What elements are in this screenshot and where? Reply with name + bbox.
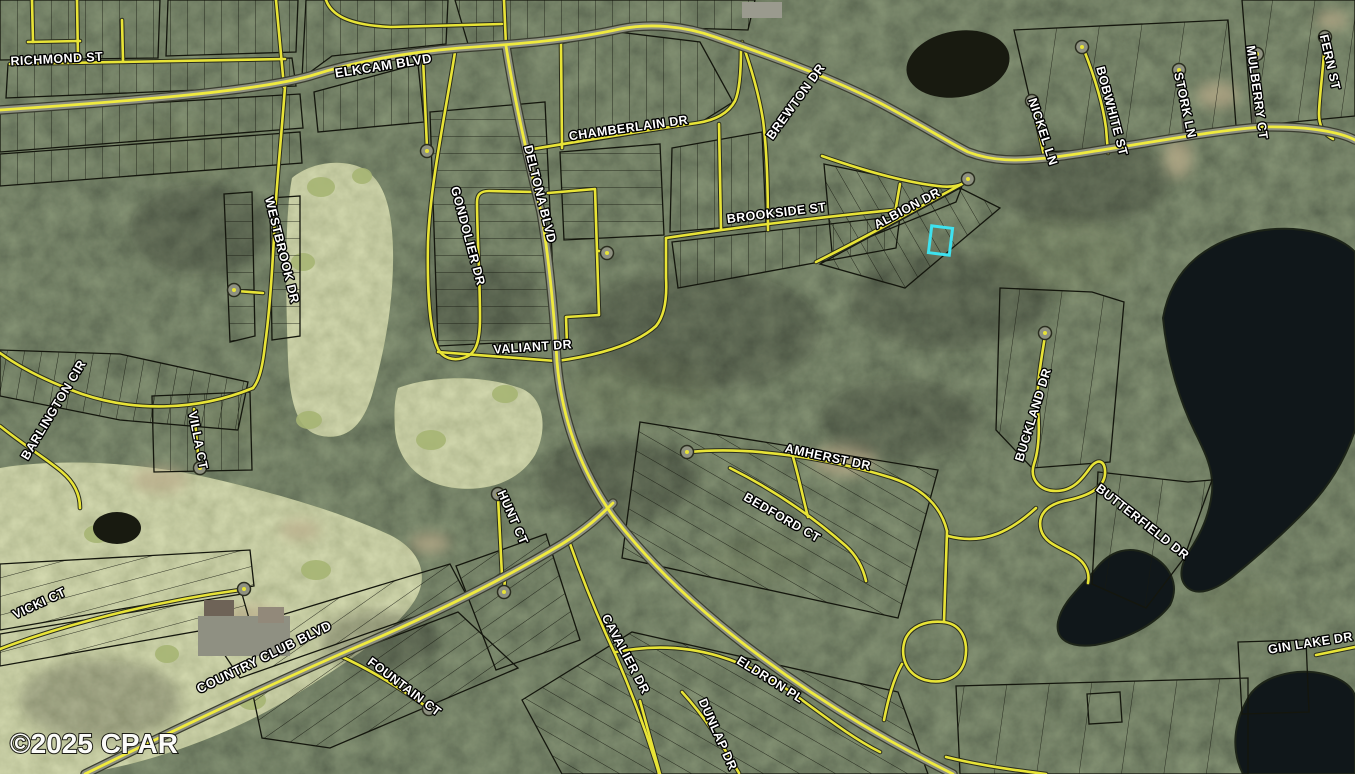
golf-green [352, 168, 372, 184]
forest-shade [580, 270, 820, 390]
parcel-block [996, 288, 1124, 468]
parcel-block [956, 678, 1248, 774]
forest-shade [820, 380, 980, 460]
road-side-st-1 [32, 0, 33, 42]
cul-de-sac-center [242, 587, 246, 591]
golf-green [416, 430, 446, 450]
golf-green [301, 560, 331, 580]
cul-de-sac-center [685, 450, 689, 454]
building-structure [204, 600, 234, 616]
cul-de-sac-center [502, 590, 506, 594]
satellite-map-viewport[interactable]: RICHMOND STELKCAM BLVDCHAMBERLAIN DRBREW… [0, 0, 1355, 774]
building-structure [742, 2, 782, 18]
cul-de-sac-center [1043, 331, 1047, 335]
golf-green [155, 645, 179, 663]
building-structure [258, 607, 284, 623]
cul-de-sac-center [966, 177, 970, 181]
cul-de-sac-center [232, 288, 236, 292]
cul-de-sac-center [605, 251, 609, 255]
golf-green [307, 177, 335, 197]
road-side-st-3 [28, 41, 80, 42]
sand-patch [280, 520, 320, 540]
pond [93, 512, 141, 544]
cul-de-sac-center [425, 149, 429, 153]
cul-de-sac-center [1080, 45, 1084, 49]
golf-green [492, 385, 518, 403]
golf-green [296, 411, 322, 429]
parcel-block [430, 102, 556, 346]
map-canvas[interactable]: RICHMOND STELKCAM BLVDCHAMBERLAIN DRBREW… [0, 0, 1355, 774]
road-chamberlain-vert [561, 42, 562, 148]
sand-patch [410, 533, 450, 553]
road-side-st-4 [122, 20, 123, 61]
parcel-block [224, 192, 255, 342]
attribution-watermark: ©2025 CPAR [10, 728, 178, 759]
